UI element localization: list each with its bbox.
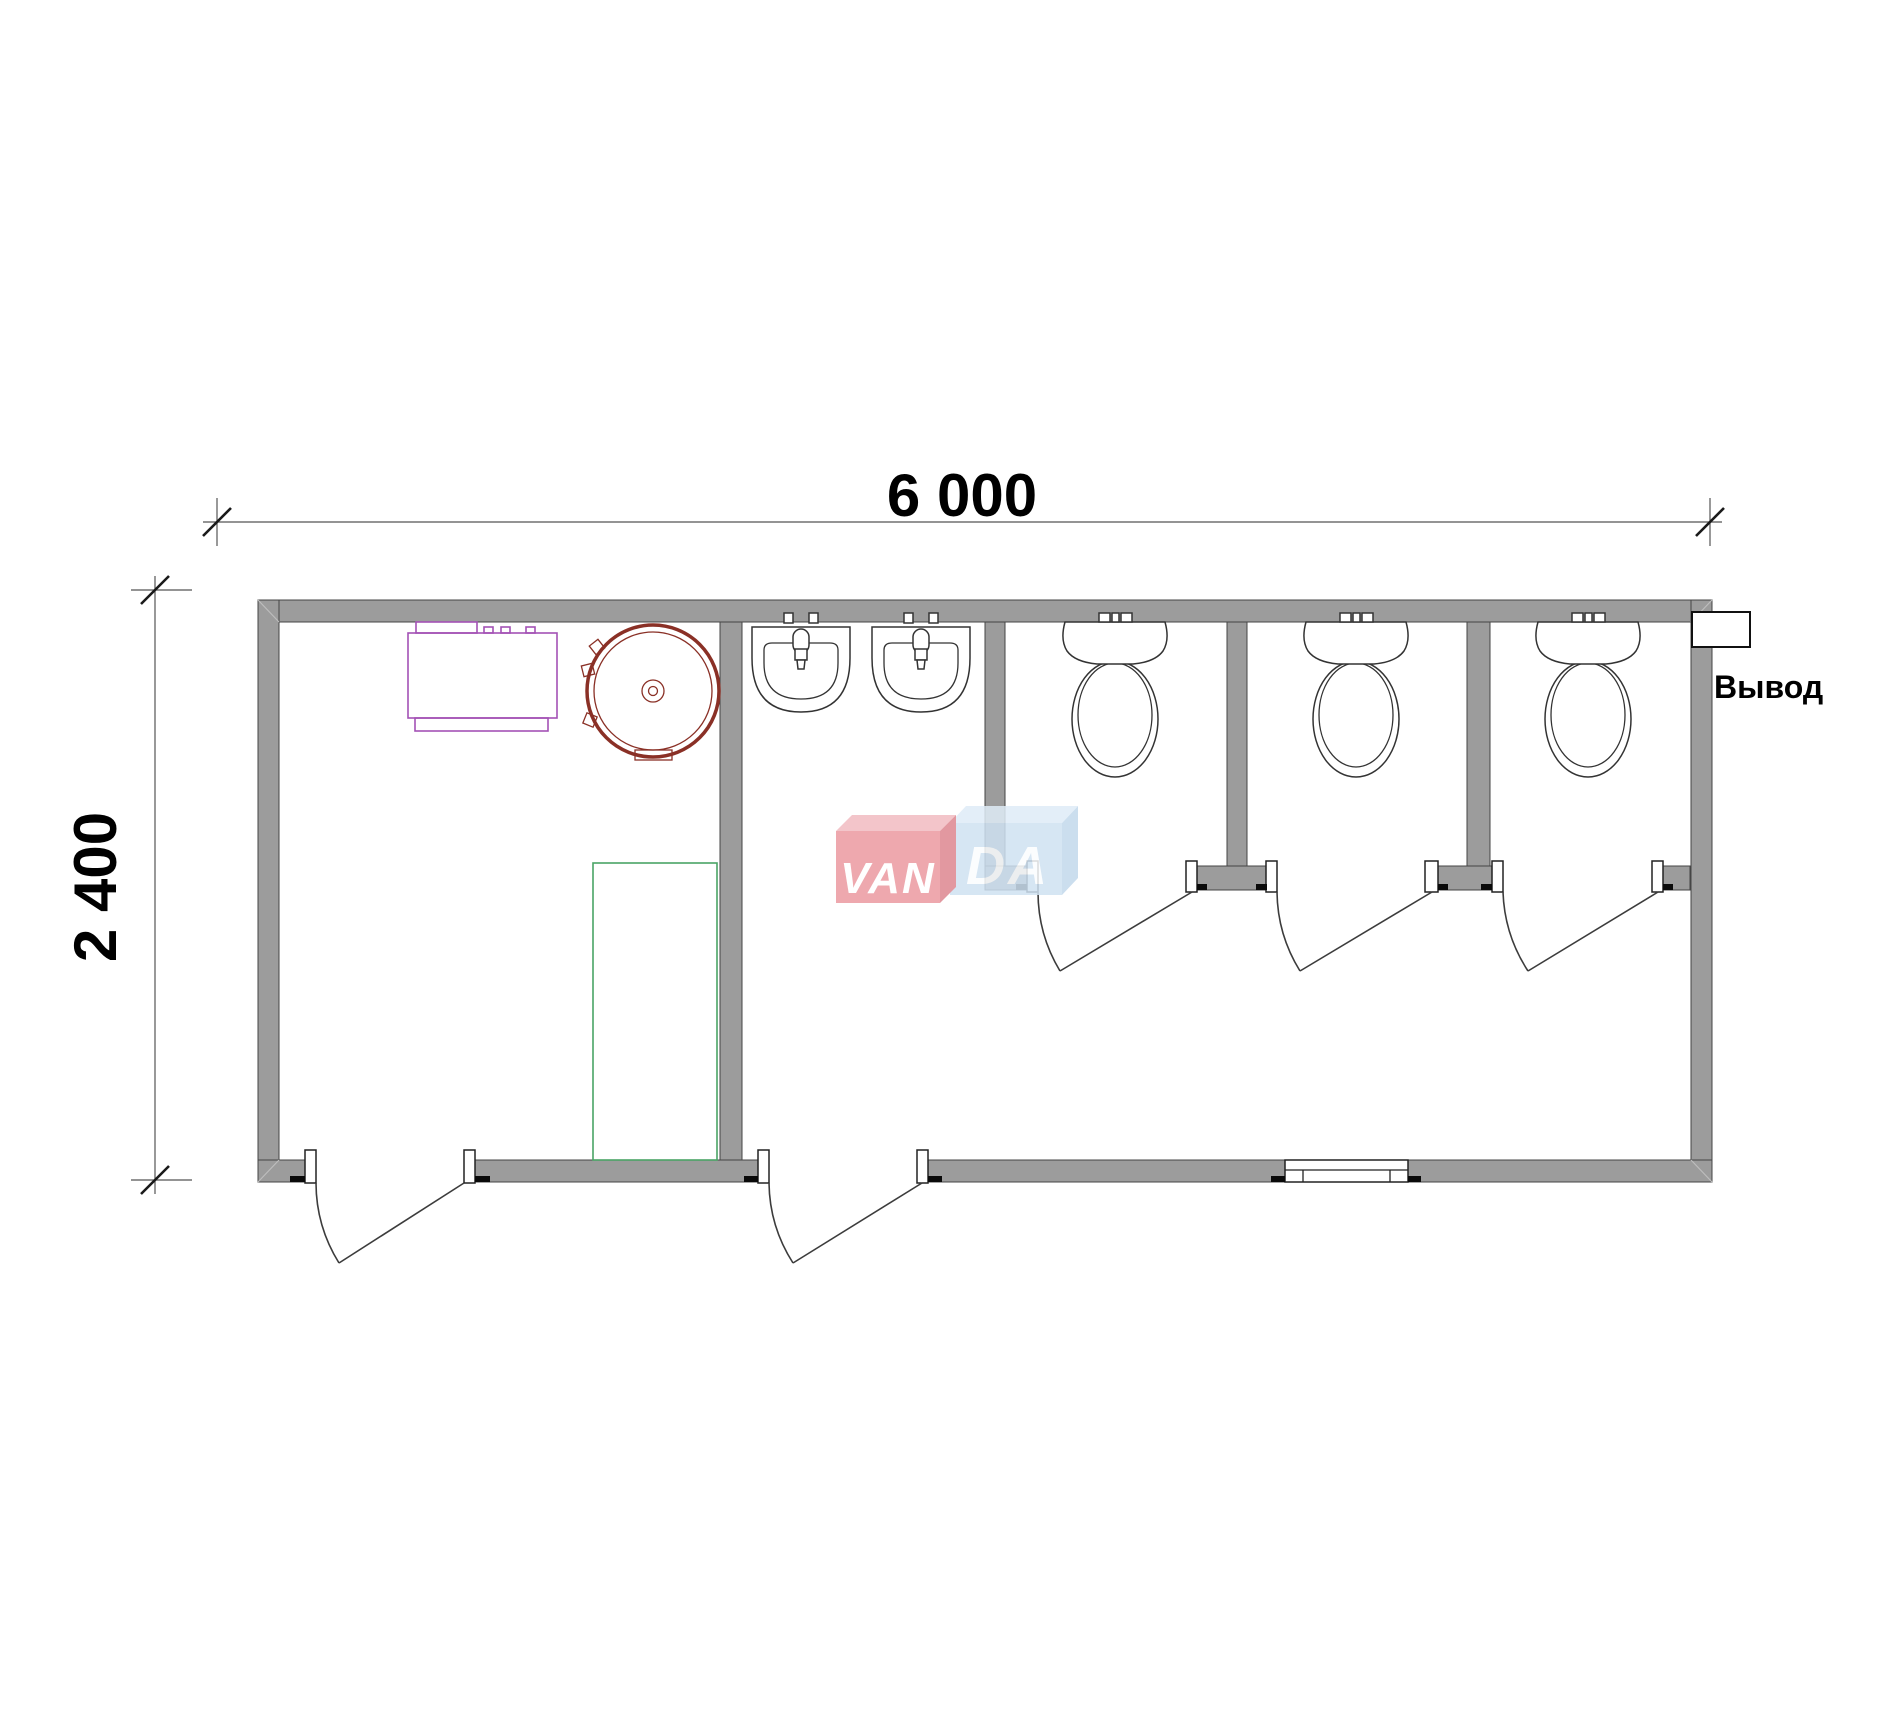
window — [1285, 1160, 1408, 1182]
toilet-1 — [1063, 613, 1167, 777]
electric-cabinet — [408, 622, 557, 731]
stall-door-2 — [1277, 892, 1432, 971]
floor-plan-drawing: 6 000 2 400 — [0, 0, 1902, 1717]
washbasin-2 — [872, 613, 970, 712]
floor-plan-page: 6 000 2 400 — [0, 0, 1902, 1717]
toilet-2 — [1304, 613, 1408, 777]
dimension-width-label: 6 000 — [887, 462, 1037, 529]
watermark-text-da: DA — [966, 836, 1050, 896]
washbasin-1 — [752, 613, 850, 712]
watermark-text-van: VAN — [840, 854, 936, 903]
toilet-3 — [1536, 613, 1640, 777]
dimension-width: 6 000 — [203, 462, 1724, 546]
vanda-watermark: VAN DA — [836, 806, 1078, 903]
exterior-door-middle — [769, 1183, 922, 1263]
stall-door-3 — [1503, 892, 1658, 971]
water-heater — [581, 625, 719, 760]
exterior-door-left — [316, 1183, 464, 1263]
dimension-height-label: 2 400 — [62, 812, 129, 962]
shower-tray — [593, 863, 717, 1160]
door-jambs — [290, 861, 1673, 1183]
dimension-height: 2 400 — [62, 576, 192, 1194]
stall-door-1 — [1038, 892, 1192, 971]
outlet-label: Вывод — [1714, 669, 1823, 705]
